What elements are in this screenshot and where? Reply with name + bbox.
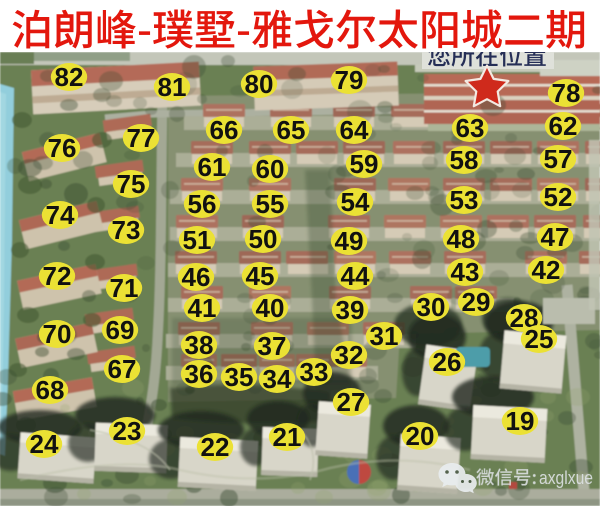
- svg-text:31: 31: [370, 321, 399, 351]
- svg-text:58: 58: [450, 145, 479, 175]
- svg-text:64: 64: [340, 115, 369, 145]
- svg-text:33: 33: [300, 357, 329, 387]
- svg-text:51: 51: [183, 225, 212, 255]
- svg-text:56: 56: [188, 189, 217, 219]
- svg-text:34: 34: [263, 364, 292, 394]
- svg-text:27: 27: [337, 387, 366, 417]
- svg-text:49: 49: [335, 226, 364, 256]
- svg-text:75: 75: [117, 169, 146, 199]
- svg-text:42: 42: [532, 255, 561, 285]
- svg-text:63: 63: [456, 113, 485, 143]
- svg-text:76: 76: [48, 133, 77, 163]
- svg-text:50: 50: [249, 224, 278, 254]
- svg-text:44: 44: [341, 261, 370, 291]
- svg-text:26: 26: [433, 347, 462, 377]
- svg-text:60: 60: [256, 154, 285, 184]
- svg-text:35: 35: [225, 362, 254, 392]
- svg-text:78: 78: [552, 78, 581, 108]
- svg-text:77: 77: [127, 123, 156, 153]
- svg-text:48: 48: [447, 224, 476, 254]
- svg-text:23: 23: [113, 416, 142, 446]
- svg-text:21: 21: [273, 422, 302, 452]
- svg-text:30: 30: [417, 292, 446, 322]
- svg-text:20: 20: [406, 421, 435, 451]
- svg-text:axglxue: axglxue: [539, 468, 593, 488]
- svg-text:81: 81: [158, 72, 187, 102]
- svg-text:67: 67: [108, 354, 137, 384]
- svg-text:36: 36: [185, 359, 214, 389]
- svg-text:32: 32: [335, 340, 364, 370]
- svg-text:79: 79: [335, 65, 364, 95]
- svg-text:43: 43: [451, 257, 480, 287]
- svg-text:37: 37: [258, 331, 287, 361]
- svg-text:25: 25: [525, 324, 554, 354]
- svg-text:59: 59: [350, 149, 379, 179]
- svg-text:39: 39: [336, 295, 365, 325]
- svg-text:41: 41: [188, 293, 217, 323]
- svg-text:24: 24: [30, 429, 59, 459]
- svg-text:22: 22: [201, 432, 230, 462]
- svg-text:47: 47: [541, 222, 570, 252]
- svg-text:69: 69: [106, 315, 135, 345]
- svg-text:72: 72: [43, 261, 72, 291]
- svg-text:74: 74: [46, 200, 75, 230]
- svg-text:68: 68: [36, 375, 65, 405]
- svg-text:38: 38: [185, 330, 214, 360]
- svg-text:54: 54: [341, 187, 370, 217]
- svg-text:82: 82: [55, 62, 84, 92]
- svg-text:61: 61: [198, 152, 227, 182]
- svg-text:52: 52: [544, 182, 573, 212]
- svg-text:45: 45: [246, 261, 275, 291]
- svg-text:46: 46: [182, 262, 211, 292]
- svg-text:70: 70: [43, 319, 72, 349]
- svg-text:80: 80: [245, 69, 274, 99]
- svg-text:53: 53: [450, 185, 479, 215]
- svg-text:19: 19: [506, 406, 535, 436]
- svg-text:62: 62: [549, 111, 578, 141]
- svg-text:29: 29: [462, 287, 491, 317]
- svg-text:73: 73: [112, 215, 141, 245]
- svg-text:57: 57: [544, 144, 573, 174]
- svg-text:55: 55: [256, 189, 285, 219]
- svg-text:71: 71: [110, 273, 139, 303]
- svg-text:65: 65: [277, 115, 306, 145]
- svg-text:40: 40: [256, 293, 285, 323]
- svg-text:66: 66: [210, 115, 239, 145]
